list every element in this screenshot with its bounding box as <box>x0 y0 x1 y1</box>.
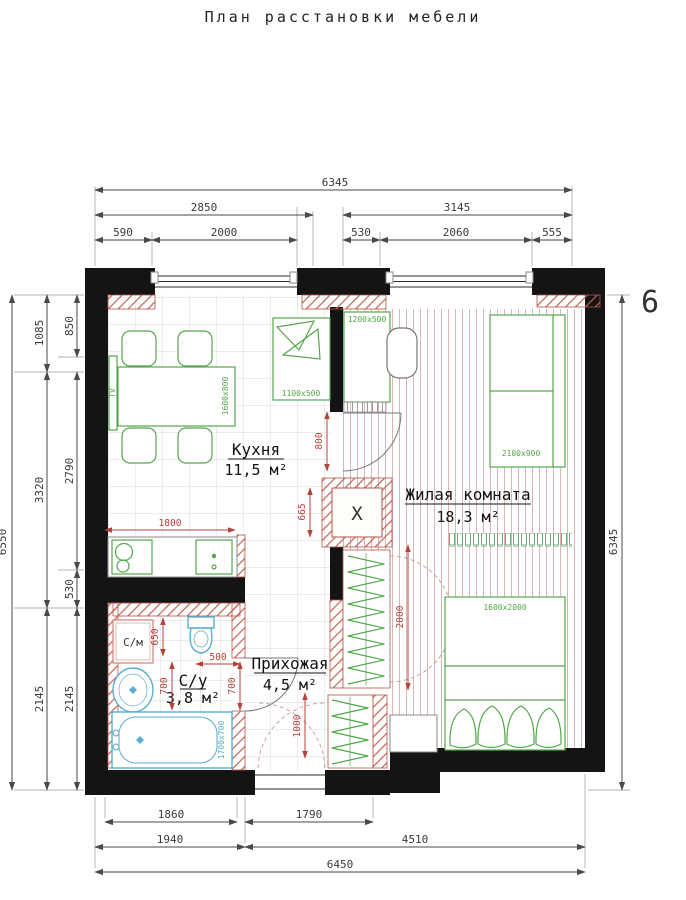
svg-text:3,8 м²: 3,8 м² <box>166 689 220 707</box>
wall-bath-right-upper <box>232 603 245 658</box>
dim-2145-mid: 2145 <box>33 686 46 713</box>
dim-1860: 1860 <box>158 808 185 821</box>
wall-bath-right-lower <box>232 711 245 770</box>
dim-850: 850 <box>63 316 76 336</box>
dim-530: 530 <box>351 226 371 239</box>
dim-right-total: 6345 <box>607 529 620 556</box>
dim-3145: 3145 <box>444 201 471 214</box>
dim-700-right: 700 <box>227 677 238 694</box>
radiator <box>344 402 386 412</box>
lining-top-mid <box>302 295 386 309</box>
window-kitchen <box>151 272 297 287</box>
dim-2060: 2060 <box>443 226 470 239</box>
wall-closet-right <box>373 695 387 768</box>
wall-bottom-step <box>390 772 440 793</box>
dim-700-left: 700 <box>159 677 170 694</box>
svg-text:11,5 м²: 11,5 м² <box>224 461 287 479</box>
dim-2850: 2850 <box>191 201 218 214</box>
wall-top-mid-pier <box>297 268 390 295</box>
dining-table-size: 1600x800 <box>221 377 230 416</box>
dim-2000i: 2000 <box>395 605 406 628</box>
cabinet <box>390 715 437 752</box>
wall-kitchen-bath <box>108 577 245 603</box>
toilet <box>188 617 214 653</box>
wall-bottom-mid <box>325 770 390 795</box>
dim-2145-inner: 2145 <box>63 686 76 713</box>
chair <box>178 331 212 366</box>
dim-650: 650 <box>150 628 161 645</box>
dims-left: 6550 1085 3320 2145 850 2790 530 2145 <box>0 295 84 790</box>
bed-size: 1600x2000 <box>483 603 527 612</box>
dim-1800: 1800 <box>159 518 182 529</box>
dims-top: 6345 2850 3145 590 2000 530 2060 555 <box>95 176 572 266</box>
desk: 1200x500 <box>344 312 390 402</box>
kitchen-counter <box>108 537 237 577</box>
svg-text:С/у: С/у <box>179 671 208 690</box>
bathtub-size: 1700x700 <box>217 721 226 760</box>
dim-530-left: 530 <box>63 579 76 599</box>
wall-bottom-left <box>85 770 255 795</box>
sofa: 2100x900 <box>490 315 565 467</box>
chair <box>122 428 156 463</box>
svg-text:18,3 м²: 18,3 м² <box>436 508 499 526</box>
bathtub: 1700x700 <box>112 712 232 768</box>
bench-size: 1100x500 <box>282 389 321 398</box>
curtain-divider <box>447 533 572 547</box>
dim-555: 555 <box>542 226 562 239</box>
window-living <box>386 272 533 287</box>
dim-2790: 2790 <box>63 458 76 485</box>
dining-table <box>118 367 235 426</box>
tv-label: TV <box>108 388 117 398</box>
svg-text:Кухня: Кухня <box>232 440 280 459</box>
floor-plan-drawing: X TV 1600x800 <box>0 0 686 900</box>
lining-top-right <box>537 295 600 307</box>
dim-1085: 1085 <box>33 320 46 347</box>
washing-machine-label: С/м <box>123 636 143 649</box>
apartment-number: 6 <box>641 285 659 320</box>
lining-bath-top <box>113 603 240 616</box>
shaft-x-mark: X <box>351 503 363 525</box>
dim-1790: 1790 <box>296 808 323 821</box>
bed: 1600x2000 <box>445 597 565 750</box>
chair <box>178 428 212 463</box>
washing-machine: С/м <box>113 620 153 663</box>
dim-1000: 1000 <box>292 714 303 737</box>
wardrobe-lower <box>328 695 373 768</box>
dim-top-total: 6345 <box>322 176 349 189</box>
dim-2000: 2000 <box>211 226 238 239</box>
dim-bottom-total: 6450 <box>327 858 354 871</box>
wall-right <box>585 268 605 772</box>
chair <box>122 331 156 366</box>
dim-4510: 4510 <box>402 833 429 846</box>
dim-3320: 3320 <box>33 477 46 504</box>
wall-closet-left <box>330 600 343 688</box>
svg-text:Прихожая: Прихожая <box>251 654 328 673</box>
bath-sink <box>113 668 153 712</box>
kitchen-label: Кухня 11,5 м² <box>224 440 287 479</box>
dim-left-total: 6550 <box>0 529 9 556</box>
dim-1940: 1940 <box>157 833 184 846</box>
dim-590: 590 <box>113 226 133 239</box>
dim-800: 800 <box>314 432 325 449</box>
lining-top-left <box>108 295 155 309</box>
desk-size: 1200x500 <box>348 315 387 324</box>
wardrobe-upper <box>343 550 390 688</box>
wall-kitchen-living <box>330 307 343 412</box>
dim-665: 665 <box>297 503 308 520</box>
floor-plan-page: План расстановки мебели <box>0 0 686 900</box>
sofa-size: 2100x900 <box>502 449 541 458</box>
kitchen-bench: 1100x500 <box>273 318 330 400</box>
desk-chair <box>387 328 417 378</box>
svg-text:4,5 м²: 4,5 м² <box>263 676 317 694</box>
entry-threshold <box>255 775 325 789</box>
dim-500: 500 <box>209 652 226 663</box>
vent-shaft: X <box>322 478 392 547</box>
lining-counter-stub <box>237 535 245 577</box>
svg-text:Жилая комната: Жилая комната <box>405 485 530 504</box>
wall-below-shaft <box>330 547 343 600</box>
wall-left <box>85 268 108 795</box>
